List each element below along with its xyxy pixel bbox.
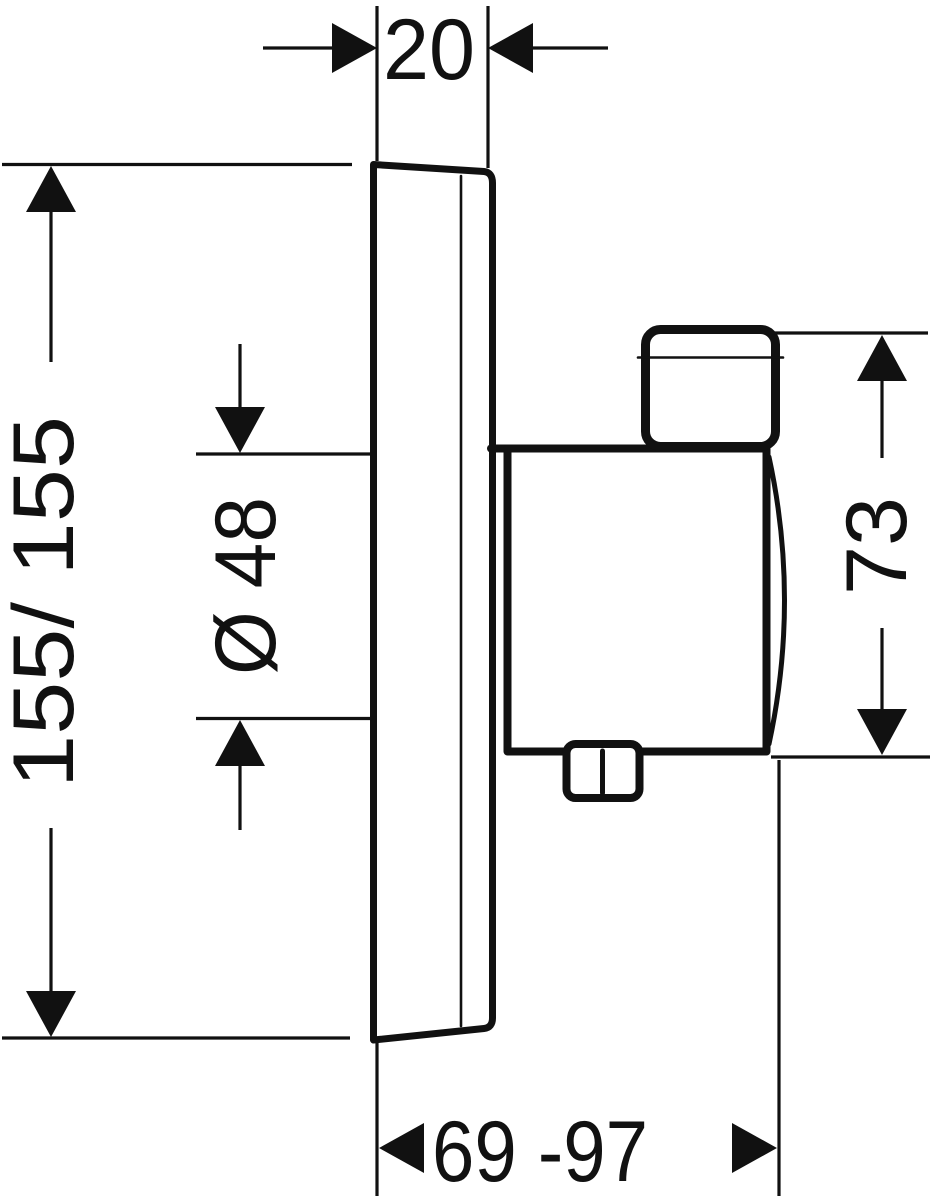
dim-arrow-left-icon xyxy=(379,1123,424,1173)
dim-arrow-down-icon xyxy=(215,407,265,453)
dim-arrow-right-icon xyxy=(332,23,377,73)
dimension-drawing: 20 155/ 155 Ø 48 73 69 -97 xyxy=(0,0,931,1200)
dim-top-width: 20 xyxy=(263,2,608,168)
dim-label-installation-depth: 69 -97 xyxy=(432,1104,648,1200)
dim-label-body-height: 73 xyxy=(829,497,925,595)
dim-arrow-up-icon xyxy=(215,720,265,766)
dim-label-plate-thickness: 20 xyxy=(383,2,475,98)
part-side-view xyxy=(374,165,785,1041)
dim-right-height: 73 xyxy=(771,333,930,757)
dim-arrow-left-icon xyxy=(488,23,533,73)
wall-plate-outline xyxy=(374,165,493,1041)
valve-body-cap-arc xyxy=(769,457,785,744)
technical-drawing-canvas: 20 155/ 155 Ø 48 73 69 -97 xyxy=(0,0,931,1200)
dim-arrow-up-icon xyxy=(857,335,907,381)
dim-label-plate-size: 155/ 155 xyxy=(0,416,92,788)
dim-arrow-right-icon xyxy=(732,1123,777,1173)
dim-label-cutout-diameter: Ø 48 xyxy=(198,497,294,675)
handle-cap-outline xyxy=(646,330,776,447)
dim-cutout-diameter: Ø 48 xyxy=(196,344,372,830)
dim-arrow-up-icon xyxy=(26,166,76,212)
dim-arrow-down-icon xyxy=(26,991,76,1037)
valve-body-outline xyxy=(508,449,767,752)
dim-arrow-down-icon xyxy=(857,709,907,755)
dim-left-height: 155/ 155 xyxy=(0,165,352,1039)
